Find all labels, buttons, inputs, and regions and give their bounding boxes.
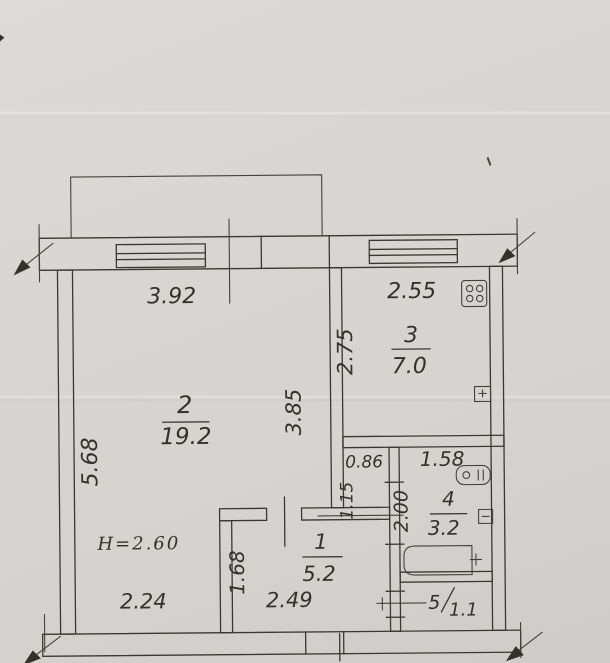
window-dimension-extension-line — [229, 219, 230, 304]
living-room-area: 19.2 — [160, 424, 211, 450]
balcony-outline — [71, 175, 323, 238]
kitchen-bath-wall — [343, 435, 504, 447]
hall-room-area: 5.2 — [302, 562, 336, 586]
hall-top-wall-left-segment — [220, 508, 267, 520]
stray-pen-mark — [487, 157, 490, 165]
wc-room-number: 5 — [428, 592, 440, 614]
dim-bath-depth: 2.00 — [390, 490, 412, 533]
living-room-window-glazing-line — [116, 253, 205, 254]
bottom-exterior-wall — [43, 630, 521, 656]
floor-plan-drawing: 3.92 2.55 5.68 3.85 2.75 2 19.2 3 7.0 0.… — [0, 0, 610, 663]
living-room-window-glazing-line — [116, 259, 205, 260]
ceiling-height-note: H=2.60 — [96, 533, 180, 555]
dim-bottom-left-width: 2.24 — [120, 589, 167, 613]
kitchen-sink-icon — [474, 386, 490, 401]
bathtub-icon — [404, 545, 482, 575]
hall-room-number: 1 — [314, 530, 328, 554]
break-mark-bottom-right — [506, 622, 543, 661]
dim-kitchen-width: 2.55 — [387, 279, 436, 304]
bath-room-area: 3.2 — [428, 516, 460, 540]
dim-bath-width: 1.58 — [420, 447, 465, 471]
bath-room-number: 4 — [442, 487, 455, 511]
kitchen-room-number: 3 — [404, 323, 418, 348]
dim-niche-width: 0.86 — [345, 452, 383, 472]
living-room-window — [116, 244, 205, 268]
living-room-number: 2 — [177, 391, 193, 419]
dim-top-window: 3.92 — [147, 284, 196, 309]
scanned-floor-plan-photo: 3.92 2.55 5.68 3.85 2.75 2 19.2 3 7.0 0.… — [0, 0, 610, 663]
left-exterior-wall — [57, 270, 75, 634]
bath-wc-divider-wall — [400, 571, 492, 582]
dim-kitchen-depth: 2.75 — [333, 328, 357, 375]
stove-icon — [462, 280, 487, 306]
kitchen-window — [369, 240, 457, 264]
entrance-door — [306, 632, 344, 661]
edge-speck-artifact — [0, 33, 4, 44]
dim-hall-width: 2.49 — [266, 588, 313, 612]
dim-hall-depth: 1.68 — [225, 550, 249, 595]
kitchen-window-glazing-line — [369, 255, 457, 256]
wc-room-area: 1.1 — [449, 600, 478, 621]
towel-rail-icon — [479, 509, 493, 523]
windows — [116, 235, 457, 270]
dim-niche-height: 1.15 — [337, 482, 357, 520]
dim-left-height: 5.68 — [78, 437, 103, 486]
dim-living-inner-height: 3.85 — [281, 389, 305, 436]
break-mark-top-left — [13, 224, 54, 282]
living-kitchen-wall — [329, 268, 343, 508]
kitchen-window-glazing-line — [369, 249, 457, 250]
dimension-marks — [229, 217, 426, 612]
kitchen-room-area: 7.0 — [392, 354, 427, 379]
